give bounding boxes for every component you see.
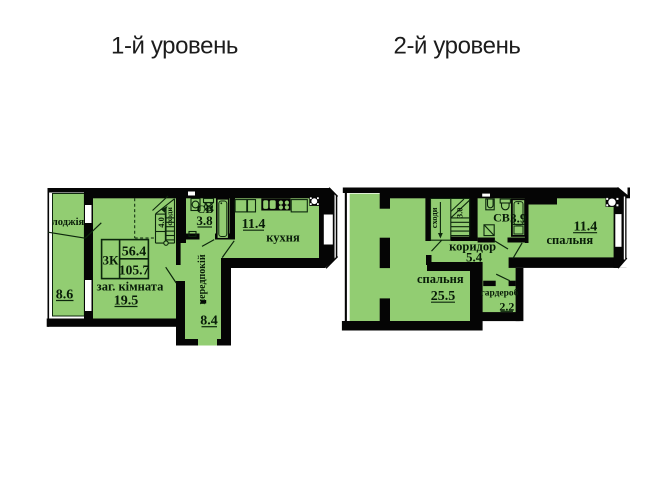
svg-text:кухня: кухня <box>266 231 300 245</box>
svg-text:1-й уровень: 1-й уровень <box>111 33 238 60</box>
svg-text:3.0: 3.0 <box>454 207 464 218</box>
svg-text:2-й уровень: 2-й уровень <box>394 33 521 60</box>
svg-text:сходи: сходи <box>429 207 439 228</box>
svg-text:3К: 3К <box>103 253 120 268</box>
svg-text:105.7: 105.7 <box>119 263 150 278</box>
svg-text:заг. кімната: заг. кімната <box>97 280 164 294</box>
svg-text:3.8: 3.8 <box>196 213 213 228</box>
svg-text:гардероб: гардероб <box>480 288 518 299</box>
svg-text:спальня: спальня <box>417 272 464 286</box>
svg-text:передпокій: передпокій <box>197 254 208 304</box>
svg-text:сходи: сходи <box>165 207 174 226</box>
svg-text:лоджія: лоджія <box>52 217 85 228</box>
svg-text:спальня: спальня <box>546 233 593 247</box>
svg-text:СВ: СВ <box>493 210 510 224</box>
svg-text:5.4: 5.4 <box>466 249 483 264</box>
svg-text:56.4: 56.4 <box>122 245 147 260</box>
svg-text:3.9: 3.9 <box>510 210 527 225</box>
